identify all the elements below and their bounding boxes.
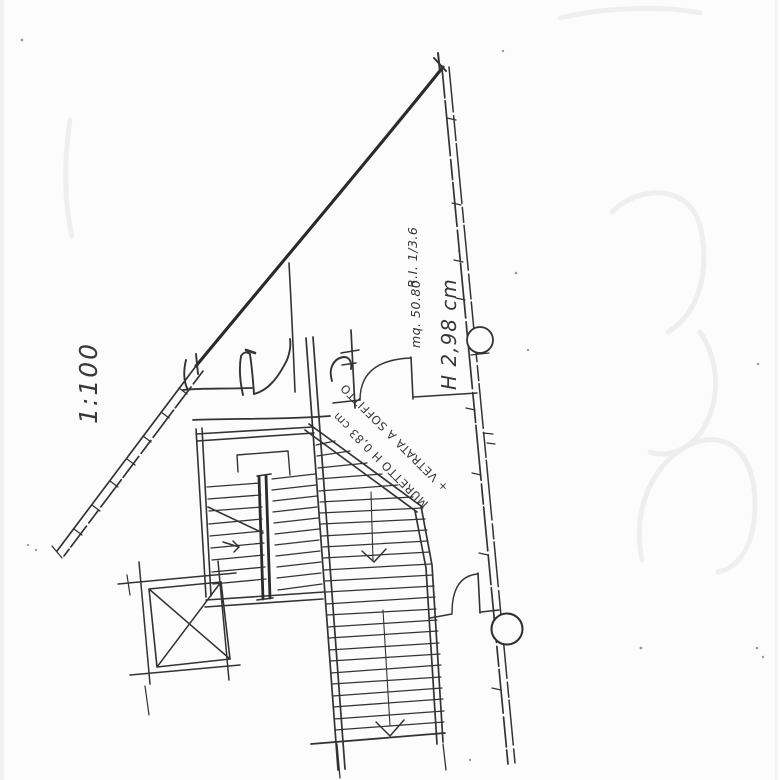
scale-label: 1:100 <box>74 342 103 424</box>
stair-top-wall <box>196 427 314 441</box>
stair-landing-lines <box>237 451 290 475</box>
stair-left-wall <box>196 428 211 597</box>
column-circle-lower <box>492 614 523 645</box>
door-leaf <box>411 357 413 399</box>
wall-apex-mark <box>434 53 446 72</box>
stair-walk-line <box>371 492 390 726</box>
exterior-wall-right <box>442 67 523 764</box>
sketch-scribbles <box>183 263 359 420</box>
door-right <box>430 573 499 618</box>
elevator-x-mark <box>149 582 230 667</box>
door-swing-arc <box>452 574 478 613</box>
stair-bottom-edge <box>311 733 445 744</box>
page-edge-left <box>0 0 4 780</box>
staircase-upper <box>196 427 324 607</box>
room-ri-label: R.I. 1/3.6 <box>405 227 420 288</box>
stair-treads-right <box>272 474 322 590</box>
room-height-label: H 2,98 cm <box>437 278 461 390</box>
scanned-page: 1:100 mq. 50.80 R.I. 1/3.6 H 2,98 cm MUR… <box>0 0 780 780</box>
stair-treads-left <box>207 483 266 584</box>
door-leaf <box>478 573 480 613</box>
elevator-shaft <box>118 561 240 715</box>
scan-specks <box>21 39 765 762</box>
door-swing-arc <box>360 358 411 400</box>
scanned-floor-plan: 1:100 mq. 50.80 R.I. 1/3.6 H 2,98 cm MUR… <box>0 0 780 780</box>
room-area-label: mq. 50.80 <box>408 280 423 348</box>
staircase-main-run <box>305 337 446 778</box>
column-circle-upper <box>467 327 493 353</box>
